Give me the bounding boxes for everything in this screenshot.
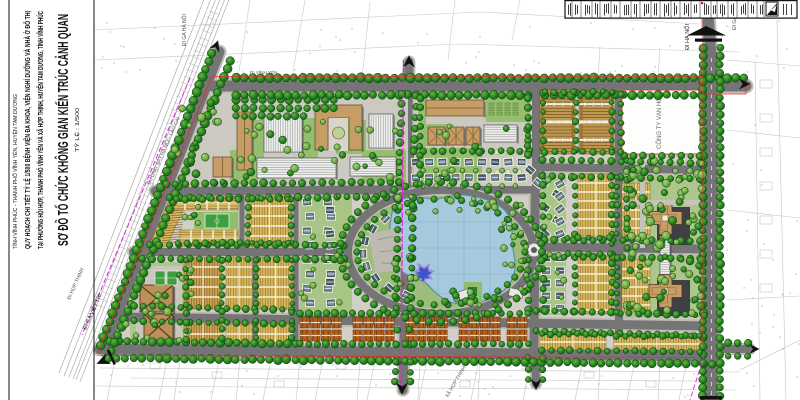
svg-text:CÔNG TY VẠN HỚI: CÔNG TY VẠN HỚI — [656, 95, 663, 149]
svg-text:QUY HOẠCH CHI TIẾT TỶ LỆ 1/500: QUY HOẠCH CHI TIẾT TỶ LỆ 1/500 BỆNH VIỆN… — [22, 11, 32, 249]
svg-text:TẠI PHƯỜNG HỘI HỢP, THÀNH PHỐ: TẠI PHƯỜNG HỘI HỢP, THÀNH PHỐ VĨNH YÊN V… — [35, 11, 45, 249]
svg-text:ĐI HÀ NỘI: ĐI HÀ NỘI — [684, 24, 691, 50]
svg-text:ĐI VĨNH YÊN: ĐI VĨNH YÊN — [250, 68, 277, 75]
svg-text:TỶ LỆ : 1/500: TỶ LỆ : 1/500 — [73, 108, 81, 152]
svg-text:SƠ ĐỒ TỔ CHỨC KHÔNG GIAN KIẾN: SƠ ĐỒ TỔ CHỨC KHÔNG GIAN KIẾN TRÚC CẢNH … — [54, 14, 72, 246]
svg-text:TỈNH VĨNH PHÚC - THÀNH PHỐ VĨN: TỈNH VĨNH PHÚC - THÀNH PHỐ VĨNH YÊN, HUY… — [11, 94, 19, 249]
svg-text:ĐI GA HÀ NỘI: ĐI GA HÀ NỘI — [181, 14, 188, 46]
